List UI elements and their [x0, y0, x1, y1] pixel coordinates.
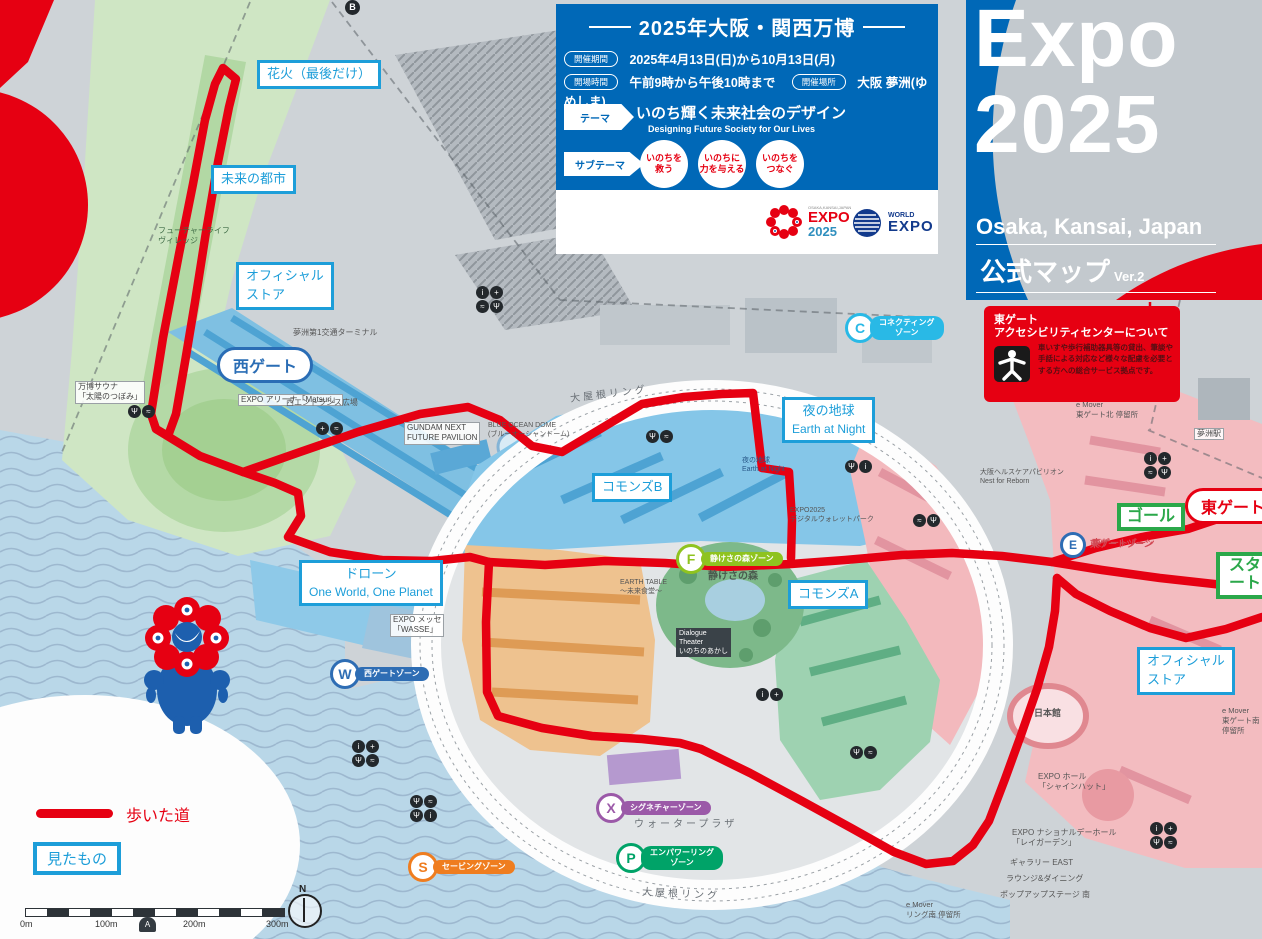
subtheme-circle-3: いのちを つなぐ — [756, 140, 804, 188]
world-expo-expo: EXPO — [888, 219, 934, 234]
info-icon: i — [1150, 822, 1163, 835]
medical-icon: + — [1164, 822, 1177, 835]
expo2025-logo-icon — [766, 204, 802, 240]
note-official-store-east-l1: オフィシャル — [1147, 652, 1225, 671]
stop-b-marker: B — [345, 0, 360, 15]
title-expo: Expo — [974, 0, 1178, 86]
restaurant-icon: Ψ — [1150, 836, 1163, 849]
note-drone: ドローン One World, One Planet — [299, 560, 443, 606]
note-official-store-west-l2: ストア — [246, 286, 324, 305]
forest-pond — [705, 579, 765, 621]
icon-cluster: i + — [756, 688, 787, 701]
legend-walked-label: 歩いた道 — [126, 802, 190, 826]
icon-cluster: Ψ i — [845, 460, 876, 473]
official-map-text: 公式マップ — [980, 257, 1110, 287]
restaurant-icon: Ψ — [352, 754, 365, 767]
wifi-icon: ≈ — [660, 430, 673, 443]
note-future-city-text: 未来の都市 — [221, 170, 286, 189]
wifi-icon: ≈ — [1144, 466, 1157, 479]
icon-cluster: Ψ ≈ Ψ i — [410, 795, 441, 822]
note-commons-a: コモンズA — [788, 580, 868, 609]
map-label: EXPO メッセ 「WASSE」 — [390, 614, 444, 637]
info-icon: i — [859, 460, 872, 473]
icon-cluster: ≈ Ψ — [913, 514, 944, 527]
map-label: 西エントランス広場 — [286, 398, 358, 408]
wifi-icon: ≈ — [864, 746, 877, 759]
info-icon: i — [352, 740, 365, 753]
accessibility-body: 車いすや歩行補助器具等の貸出、筆談や手話による対応など様々な配慮を必要とする方へ… — [1038, 342, 1174, 376]
map-label: EXPO ホール 「シャインハット」 — [1038, 772, 1110, 793]
medical-icon: + — [366, 740, 379, 753]
scale-tick-300: 300m — [266, 919, 289, 929]
map-label: 夢洲第1交通ターミナル — [293, 328, 377, 338]
note-earth-at-night-l1: 夜の地球 — [792, 402, 865, 421]
scale-bar: 0m 100m 200m 300m N A — [20, 884, 330, 936]
restaurant-icon: Ψ — [490, 300, 503, 313]
restaurant-icon: Ψ — [410, 795, 423, 808]
medical-icon: + — [770, 688, 783, 701]
title-rule-right — [863, 26, 905, 28]
title-divider-2 — [976, 292, 1216, 293]
note-commons-a-text: コモンズA — [798, 585, 858, 604]
wifi-icon: ≈ — [1164, 836, 1177, 849]
restaurant-icon: Ψ — [646, 430, 659, 443]
title-osaka-kansai: Osaka, Kansai, Japan — [976, 214, 1202, 240]
icon-cluster: i + ≈ Ψ — [1144, 452, 1175, 479]
compass-north-label: N — [299, 884, 306, 895]
map-label: BLUE OCEAN DOME (ブルーオーシャンドーム) — [488, 421, 569, 439]
accessibility-icon — [994, 346, 1030, 382]
restaurant-icon: Ψ — [1158, 466, 1171, 479]
title-divider-1 — [976, 244, 1216, 245]
theme-tag: テーマ — [564, 104, 634, 130]
zone-marker-east-gate: E 東ゲートゾーン — [1060, 532, 1162, 558]
subtheme-circle-1: いのちを 救う — [640, 140, 688, 188]
wifi-icon: ≈ — [330, 422, 343, 435]
map-label: e Mover リング南 停留所 — [906, 900, 961, 920]
zone-marker-signature: X シグネチャーゾーン — [596, 793, 711, 823]
badge-period-value: 2025年4月13日(日)から10月13日(月) — [629, 53, 835, 67]
goal-box: ゴール — [1117, 503, 1185, 531]
header-panel: 2025年大阪・関西万博 開催期間 2025年4月13日(日)から10月13日(… — [556, 4, 938, 190]
info-icon: i — [424, 809, 437, 822]
medical-icon: + — [1158, 452, 1171, 465]
restaurant-icon: Ψ — [128, 405, 141, 418]
note-commons-b-text: コモンズB — [602, 478, 662, 497]
note-official-store-west: オフィシャル ストア — [236, 262, 334, 310]
medical-icon: + — [490, 286, 503, 299]
note-official-store-east: オフィシャル ストア — [1137, 647, 1235, 695]
north-building-2 — [745, 298, 837, 353]
icon-cluster: i + Ψ ≈ — [352, 740, 383, 767]
map-label: e Mover 東ゲート南 停留所 — [1222, 706, 1260, 735]
icon-cluster: i + ≈ Ψ — [476, 286, 507, 313]
expo-logo-expo-text: EXPO — [808, 210, 851, 225]
note-earth-at-night-l2: Earth at Night — [792, 421, 865, 438]
scale-bar-segments — [25, 908, 285, 917]
zone-s-label: セービングゾーン — [433, 860, 515, 874]
title-panel: Expo 2025 Osaka, Kansai, Japan 公式マップVer.… — [966, 0, 1262, 300]
scale-tick-0: 0m — [20, 919, 33, 929]
zone-x-label: シグネチャーゾーン — [621, 801, 711, 815]
note-fireworks: 花火（最後だけ） — [257, 60, 381, 89]
title-2025: 2025 — [974, 78, 1160, 172]
note-earth-at-night: 夜の地球 Earth at Night — [782, 397, 875, 443]
map-label: GUNDAM NEXT FUTURE PAVILION — [404, 422, 480, 445]
map-label: ポップアップステージ 南 — [1000, 890, 1090, 900]
note-commons-b: コモンズB — [592, 473, 672, 502]
badge-hours-value: 午前9時から午後10時まで — [629, 76, 775, 90]
map-label: EXPO ナショナルデーホール 「レイガーデン」 — [1012, 828, 1116, 849]
zone-e-label: 東ゲートゾーン — [1081, 537, 1162, 552]
title-rule-left — [589, 26, 631, 28]
badge-place: 開催場所 — [792, 74, 846, 90]
map-label: ラウンジ&ダイニング — [1006, 874, 1083, 884]
map-label: 日本館 — [1034, 708, 1061, 720]
note-official-store-west-l1: オフィシャル — [246, 267, 324, 286]
map-label: ギャラリー EAST — [1010, 858, 1073, 868]
icon-cluster: + ≈ — [316, 422, 347, 435]
zone-marker-west-gate: W 西ゲートゾーン — [330, 659, 429, 689]
expo-logo-2025-text: 2025 — [808, 225, 851, 238]
note-fireworks-text: 花火（最後だけ） — [267, 65, 371, 84]
subtheme-circle-2: いのちに 力を与える — [698, 140, 746, 188]
icon-cluster: Ψ ≈ — [646, 430, 677, 443]
zone-marker-forest: F 静けさの森ゾーン — [676, 544, 783, 574]
icon-cluster: i + Ψ ≈ — [1150, 822, 1181, 849]
wifi-icon: ≈ — [142, 405, 155, 418]
theme-subtitle: Designing Future Society for Our Lives — [648, 124, 815, 134]
compass-icon — [288, 894, 322, 928]
subtheme-tag: サブテーマ — [564, 152, 644, 176]
stop-a-marker: A — [139, 917, 156, 932]
map-label: Dialogue Theater いのちのあかし — [676, 628, 731, 657]
map-label: EARTH TABLE ～未来食堂～ — [620, 578, 667, 596]
zone-f-label: 静けさの森ゾーン — [701, 552, 783, 566]
zone-marker-saving: S セービングゾーン — [408, 852, 515, 882]
restaurant-icon: Ψ — [410, 809, 423, 822]
note-official-store-east-l2: ストア — [1147, 671, 1225, 690]
map-label: EXPO2025 デジタルウォレットパーク — [790, 506, 874, 524]
badge-hours: 開場時間 — [564, 74, 618, 90]
info-icon: i — [756, 688, 769, 701]
info-icon: i — [1144, 452, 1157, 465]
north-building — [600, 305, 730, 345]
expo-map-page: 2025年大阪・関西万博 開催期間 2025年4月13日(日)から10月13日(… — [0, 0, 1262, 939]
legend-seen-box: 見たもの — [33, 842, 121, 875]
page-title: 2025年大阪・関西万博 — [639, 12, 856, 41]
official-map-label: 公式マップVer.2 — [980, 252, 1144, 289]
note-drone-l2: One World, One Planet — [309, 584, 433, 601]
zone-c-label: コネクティング ゾーン — [870, 316, 944, 340]
legend-route-swatch — [36, 809, 113, 818]
map-label: e Mover 東ゲート北 停留所 — [1076, 400, 1138, 420]
expo-arena-field — [162, 399, 286, 501]
world-expo-logo: WORLD EXPO — [852, 208, 934, 238]
restaurant-icon: Ψ — [850, 746, 863, 759]
restaurant-icon: Ψ — [845, 460, 858, 473]
medical-icon: + — [316, 422, 329, 435]
map-label: 万博サウナ 「太陽のつぼみ」 — [75, 381, 145, 404]
info-icon: i — [476, 286, 489, 299]
start-box: スタート — [1216, 552, 1262, 599]
accessibility-title-2: アクセシビリティセンターについて — [994, 324, 1168, 340]
wifi-icon: ≈ — [366, 754, 379, 767]
scale-tick-100: 100m — [95, 919, 118, 929]
note-future-city: 未来の都市 — [211, 165, 296, 194]
restaurant-icon: Ψ — [927, 514, 940, 527]
map-label-station: 夢洲駅 — [1194, 428, 1224, 440]
east-gate-bubble: 東ゲート — [1185, 488, 1262, 524]
wifi-icon: ≈ — [913, 514, 926, 527]
myaku-myaku-mascot — [120, 588, 255, 736]
zone-w-label: 西ゲートゾーン — [355, 667, 429, 681]
signature-district — [607, 749, 681, 785]
wifi-icon: ≈ — [476, 300, 489, 313]
map-version: Ver.2 — [1114, 269, 1144, 284]
map-label: 夜の地球 Earth at Night — [742, 456, 785, 474]
theme-title: いのち輝く未来社会のデザイン — [636, 102, 846, 123]
world-expo-logo-icon — [852, 208, 882, 238]
zone-marker-empowering: P エンパワーリング ゾーン — [616, 843, 723, 873]
logo-strip: OSAKA,KANSAI,JAPAN EXPO 2025 WORLD EXPO — [556, 190, 938, 254]
expo2025-logo: OSAKA,KANSAI,JAPAN EXPO 2025 — [766, 204, 851, 240]
header-row-dates: 開催期間 2025年4月13日(日)から10月13日(月) — [564, 49, 835, 68]
west-gate-bubble: 西ゲート — [217, 347, 313, 383]
map-label: フューチャーライフ ヴィレッジ — [158, 226, 230, 247]
badge-period: 開催期間 — [564, 51, 618, 67]
zone-marker-connecting: C コネクティング ゾーン — [845, 313, 944, 343]
scale-tick-200: 200m — [183, 919, 206, 929]
icon-cluster: Ψ ≈ — [128, 405, 159, 418]
map-label: 大阪ヘルスケアパビリオン Nest for Reborn — [980, 468, 1064, 486]
wifi-icon: ≈ — [424, 795, 437, 808]
yumeshima-station-building — [1198, 378, 1250, 420]
note-drone-l1: ドローン — [309, 565, 433, 584]
icon-cluster: Ψ ≈ — [850, 746, 881, 759]
accessibility-center-box: 東ゲート アクセシビリティセンターについて 車いすや歩行補助器具等の貸出、筆談や… — [984, 306, 1180, 402]
zone-p-label: エンパワーリング ゾーン — [641, 846, 723, 870]
